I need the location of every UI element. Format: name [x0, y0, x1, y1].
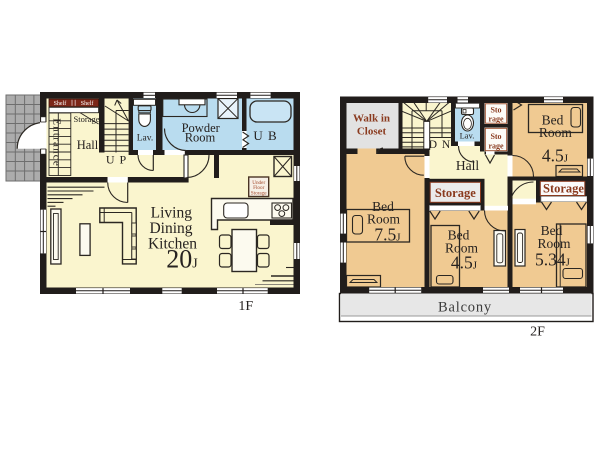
svg-text:Room: Room	[185, 131, 216, 145]
svg-text:Shelf: Shelf	[81, 100, 94, 107]
svg-text:Dining: Dining	[149, 220, 192, 237]
svg-text:2F: 2F	[530, 325, 545, 340]
svg-text:Sto: Sto	[490, 106, 501, 115]
svg-text:Closet: Closet	[357, 126, 387, 138]
svg-text:Hall: Hall	[77, 138, 99, 152]
svg-text:U B: U B	[253, 128, 277, 143]
svg-text:Hall: Hall	[456, 158, 479, 173]
svg-text:rage: rage	[488, 142, 504, 151]
svg-text:Shelf: Shelf	[54, 100, 67, 107]
svg-text:Living: Living	[151, 205, 193, 222]
svg-text:5.34J: 5.34J	[535, 250, 571, 270]
svg-text:Storage: Storage	[251, 191, 268, 197]
svg-text:Room: Room	[539, 125, 573, 140]
svg-text:D N: D N	[429, 139, 452, 151]
svg-text:rage: rage	[488, 115, 504, 124]
svg-text:Balcony: Balcony	[438, 300, 492, 316]
svg-text:U P: U P	[106, 153, 127, 167]
svg-text:Storage: Storage	[543, 181, 584, 195]
svg-text:Lav.: Lav.	[137, 134, 154, 144]
svg-text:Walk in: Walk in	[353, 113, 390, 125]
svg-text:Storage: Storage	[74, 114, 100, 124]
svg-text:Entrance: Entrance	[51, 118, 63, 167]
svg-text:1F: 1F	[238, 299, 253, 314]
svg-text:Lav.: Lav.	[460, 131, 475, 141]
svg-text:Storage: Storage	[435, 186, 476, 200]
svg-text:Sto: Sto	[490, 132, 501, 141]
